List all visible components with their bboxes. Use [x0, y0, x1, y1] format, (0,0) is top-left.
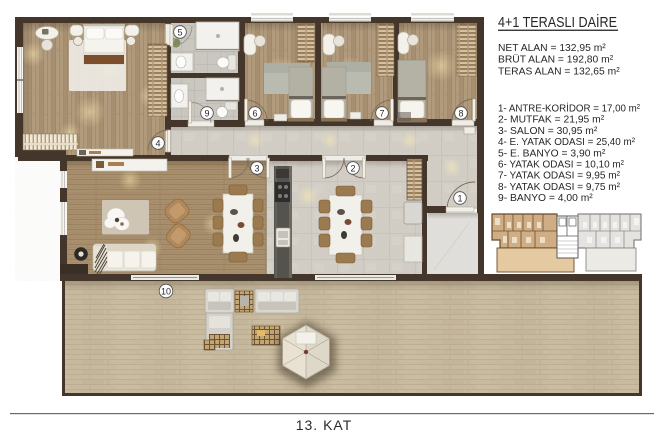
- svg-text:6: 6: [252, 108, 257, 118]
- svg-text:1- ANTRE-KORİDOR = 17,00 m²: 1- ANTRE-KORİDOR = 17,00 m²: [498, 102, 641, 115]
- svg-text:TERAS ALAN = 132,65 m²: TERAS ALAN = 132,65 m²: [498, 66, 620, 77]
- svg-text:9- BANYO = 4,00 m²: 9- BANYO = 4,00 m²: [498, 193, 593, 204]
- svg-text:3- SALON = 30,95 m²: 3- SALON = 30,95 m²: [498, 126, 598, 137]
- svg-text:6- YATAK ODASI = 10,10 m²: 6- YATAK ODASI = 10,10 m²: [498, 160, 625, 171]
- svg-text:8- YATAK ODASI = 9,75 m²: 8- YATAK ODASI = 9,75 m²: [498, 182, 621, 193]
- svg-text:10: 10: [161, 286, 171, 296]
- svg-text:5- E. BANYO = 3,90 m²: 5- E. BANYO = 3,90 m²: [498, 148, 606, 159]
- svg-text:4: 4: [155, 138, 160, 148]
- svg-text:7: 7: [379, 108, 384, 118]
- svg-text:7- YATAK ODASI = 9,95 m²: 7- YATAK ODASI = 9,95 m²: [498, 171, 621, 182]
- svg-text:4+1 TERASLI DAİRE: 4+1 TERASLI DAİRE: [498, 13, 617, 31]
- svg-text:4- E. YATAK ODASI = 25,40 m²: 4- E. YATAK ODASI = 25,40 m²: [498, 137, 636, 148]
- svg-text:3: 3: [254, 163, 259, 173]
- svg-text:2- MUTFAK = 21,95 m²: 2- MUTFAK = 21,95 m²: [498, 115, 605, 126]
- svg-text:5: 5: [177, 27, 182, 37]
- svg-text:2: 2: [350, 163, 355, 173]
- svg-text:9: 9: [204, 108, 209, 118]
- svg-text:8: 8: [458, 108, 463, 118]
- svg-text:13. KAT: 13. KAT: [296, 417, 353, 433]
- svg-text:1: 1: [457, 193, 462, 203]
- svg-text:NET ALAN = 132,95 m²: NET ALAN = 132,95 m²: [498, 43, 606, 54]
- svg-text:BRÜT ALAN = 192,80 m²: BRÜT ALAN = 192,80 m²: [498, 54, 614, 66]
